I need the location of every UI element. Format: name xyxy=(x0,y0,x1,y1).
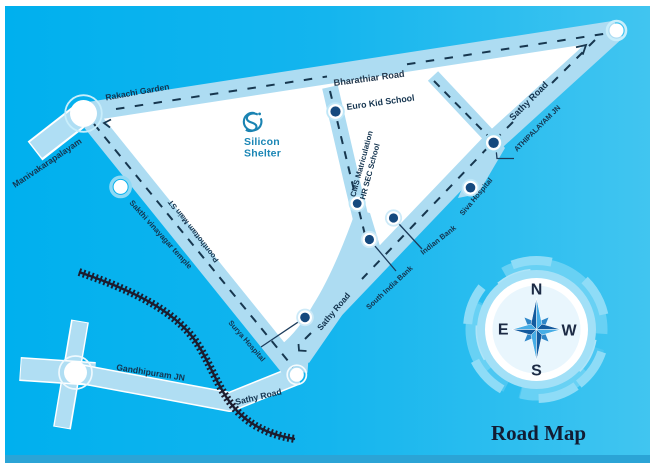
svg-text:E: E xyxy=(498,322,509,339)
svg-text:Shelter: Shelter xyxy=(244,148,281,160)
svg-text:W: W xyxy=(561,323,577,340)
svg-text:Silicon: Silicon xyxy=(244,136,280,148)
svg-text:S: S xyxy=(531,363,542,380)
svg-text:N: N xyxy=(531,282,543,299)
svg-text:Road Map: Road Map xyxy=(491,421,586,445)
